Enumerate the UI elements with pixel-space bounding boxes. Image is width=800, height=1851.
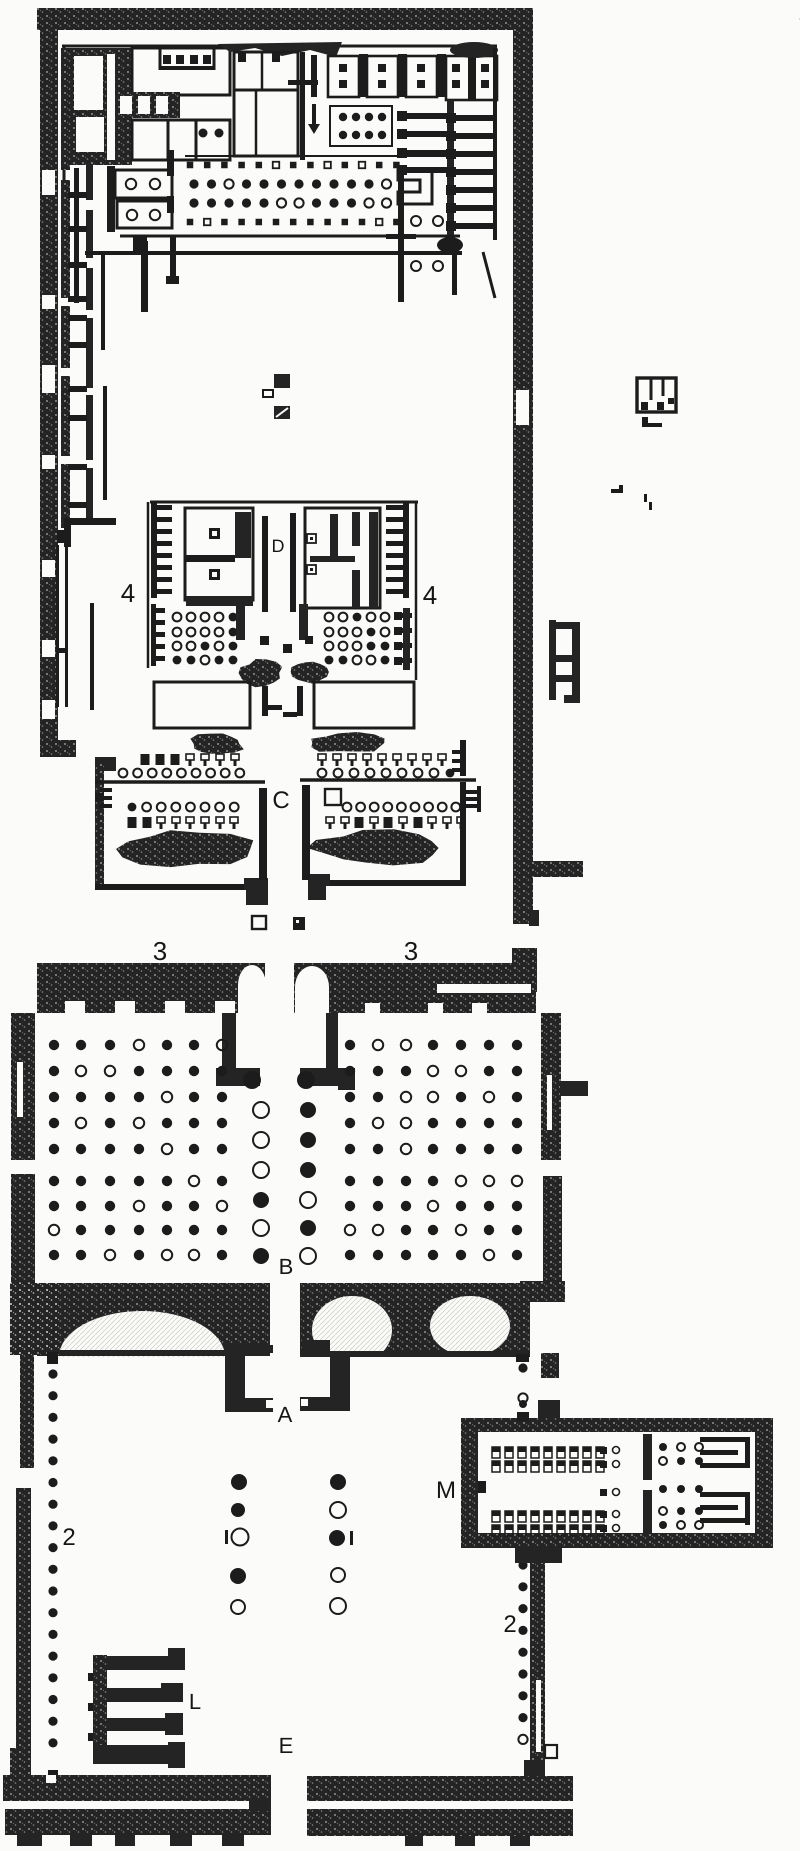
svg-text:2: 2 <box>62 1524 75 1551</box>
svg-text:L: L <box>189 1689 201 1714</box>
svg-text:C: C <box>272 787 289 814</box>
svg-text:2: 2 <box>503 1611 516 1638</box>
svg-text:3: 3 <box>404 936 418 966</box>
svg-text:B: B <box>279 1254 294 1279</box>
svg-text:M: M <box>436 1477 456 1504</box>
svg-text:4: 4 <box>423 580 437 610</box>
svg-text:3: 3 <box>153 936 167 966</box>
svg-text:D: D <box>271 536 284 556</box>
svg-text:E: E <box>279 1733 294 1758</box>
svg-text:A: A <box>278 1402 293 1427</box>
svg-text:4: 4 <box>121 578 135 608</box>
